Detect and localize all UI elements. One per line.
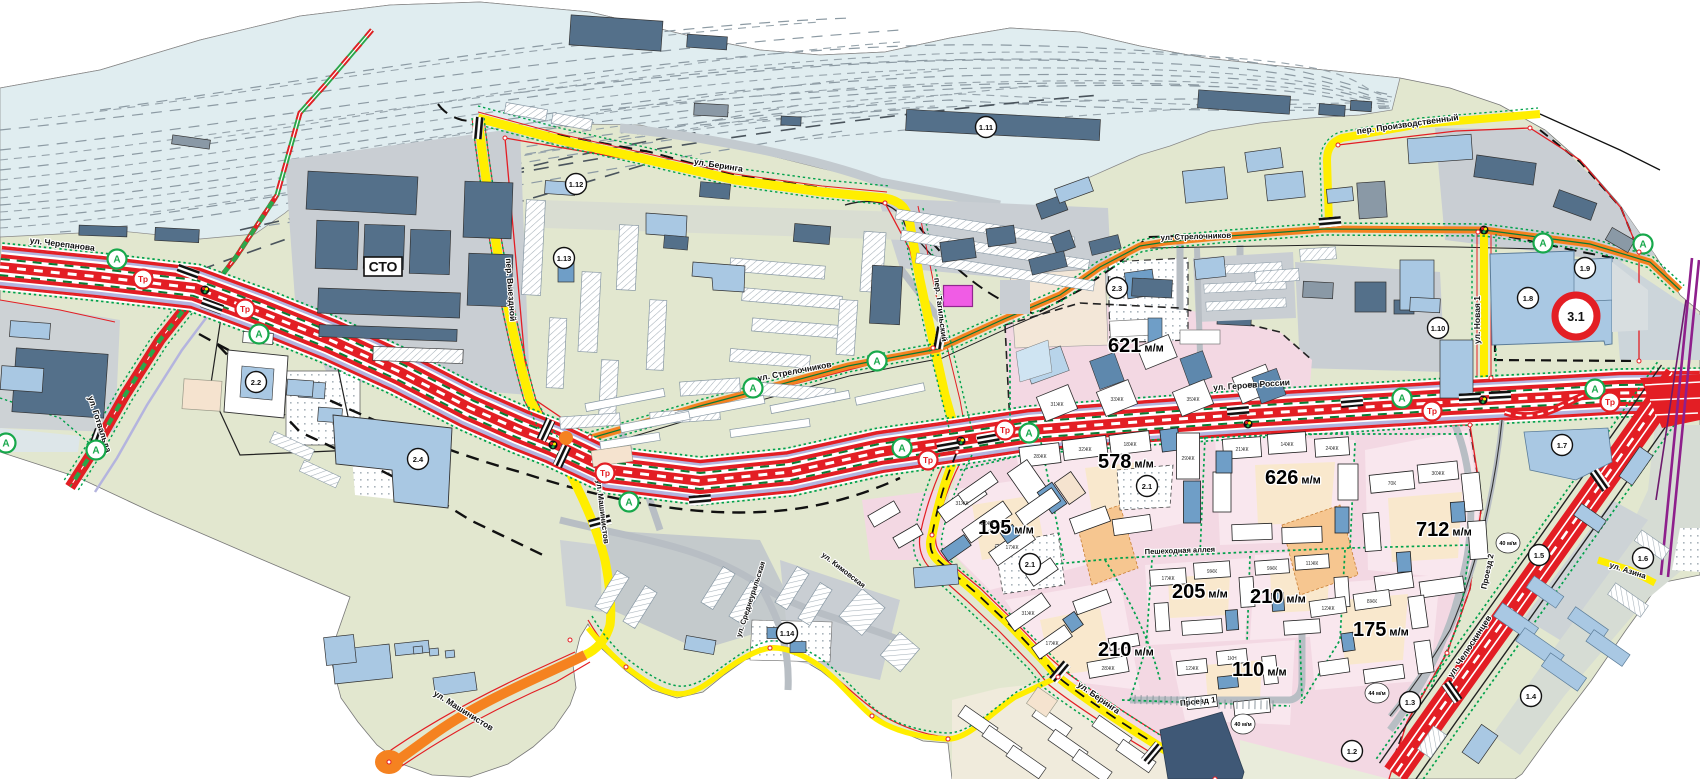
svg-text:А: А	[92, 446, 99, 457]
svg-text:А: А	[898, 444, 905, 455]
svg-text:18ЖК: 18ЖК	[1123, 442, 1136, 448]
svg-text:8ЖК: 8ЖК	[1367, 599, 1377, 605]
svg-text:Тр: Тр	[1427, 406, 1437, 416]
svg-text:17ЖК: 17ЖК	[1005, 545, 1018, 551]
svg-text:1.2: 1.2	[1347, 747, 1357, 756]
svg-text:1.7: 1.7	[1557, 441, 1567, 450]
svg-text:17ЖК: 17ЖК	[1045, 641, 1058, 647]
svg-text:31ЖК: 31ЖК	[1050, 402, 1063, 408]
svg-text:28ЖК: 28ЖК	[1101, 666, 1114, 672]
svg-text:А: А	[749, 384, 756, 395]
svg-text:Тр: Тр	[1605, 397, 1615, 407]
svg-text:12ЖК: 12ЖК	[1185, 666, 1198, 672]
svg-text:2.2: 2.2	[251, 378, 261, 387]
svg-text:32ЖК: 32ЖК	[1078, 447, 1091, 453]
svg-text:40 м/м: 40 м/м	[1499, 541, 1516, 547]
svg-text:24ЖК: 24ЖК	[1325, 446, 1338, 452]
svg-text:А: А	[113, 255, 120, 266]
svg-text:3.1: 3.1	[1567, 310, 1584, 324]
svg-text:70К: 70К	[1388, 481, 1397, 487]
svg-text:А: А	[2, 439, 9, 450]
svg-text:9ЖК: 9ЖК	[1207, 569, 1217, 575]
svg-text:Тр: Тр	[1000, 425, 1010, 435]
svg-text:22ЖК: 22ЖК	[980, 521, 993, 527]
svg-text:А: А	[1539, 239, 1546, 250]
svg-text:9ЖК: 9ЖК	[1267, 566, 1277, 572]
svg-text:12ЖК: 12ЖК	[1321, 606, 1334, 612]
svg-text:1.8: 1.8	[1523, 294, 1533, 303]
svg-text:Тр: Тр	[138, 274, 148, 284]
svg-text:А: А	[625, 498, 632, 509]
svg-text:2.1: 2.1	[1142, 482, 1152, 491]
svg-text:44 м/м: 44 м/м	[1368, 691, 1385, 697]
svg-text:33ЖК: 33ЖК	[1110, 397, 1123, 403]
svg-text:1.9: 1.9	[1580, 264, 1590, 273]
svg-text:1.12: 1.12	[569, 180, 584, 189]
svg-text:31ЖК: 31ЖК	[955, 501, 968, 507]
svg-text:СТО: СТО	[369, 259, 398, 275]
svg-text:1.6: 1.6	[1638, 554, 1648, 563]
svg-text:1КН: 1КН	[1227, 656, 1237, 662]
svg-text:31ЖК: 31ЖК	[1247, 383, 1260, 389]
svg-text:2.1: 2.1	[1025, 560, 1035, 569]
svg-text:28ЖК: 28ЖК	[1033, 454, 1046, 460]
svg-text:А: А	[1025, 429, 1032, 440]
svg-text:1.11: 1.11	[979, 123, 993, 132]
svg-text:31ЖК: 31ЖК	[1021, 611, 1034, 617]
svg-text:А: А	[1591, 385, 1598, 396]
svg-text:Тр: Тр	[240, 304, 250, 314]
svg-text:14ЖК: 14ЖК	[1280, 442, 1293, 448]
svg-text:А: А	[255, 330, 262, 341]
svg-text:А: А	[1639, 240, 1646, 251]
svg-text:30ЖК: 30ЖК	[1431, 471, 1444, 477]
svg-text:21ЖК: 21ЖК	[1235, 447, 1248, 453]
svg-text:2.3: 2.3	[1112, 284, 1122, 293]
svg-text:29ЖК: 29ЖК	[1181, 456, 1194, 462]
svg-text:Тр: Тр	[923, 455, 933, 465]
svg-text:40 м/м: 40 м/м	[1234, 722, 1251, 728]
svg-text:ул. Новая 1: ул. Новая 1	[1472, 296, 1482, 344]
svg-text:1.14: 1.14	[780, 629, 795, 638]
svg-text:1.10: 1.10	[1431, 324, 1446, 333]
svg-text:А: А	[1398, 394, 1405, 405]
svg-text:Тр: Тр	[600, 468, 610, 478]
svg-text:1.5: 1.5	[1534, 551, 1544, 560]
svg-text:35ЖК: 35ЖК	[1186, 397, 1199, 403]
svg-text:17ЖК: 17ЖК	[1161, 576, 1174, 582]
svg-text:1.13: 1.13	[557, 254, 572, 263]
svg-text:2.4: 2.4	[413, 455, 424, 464]
svg-text:11ЖК: 11ЖК	[1306, 561, 1319, 567]
svg-text:1.3: 1.3	[1405, 698, 1415, 707]
svg-text:А: А	[873, 357, 880, 368]
svg-text:1.4: 1.4	[1526, 692, 1537, 701]
